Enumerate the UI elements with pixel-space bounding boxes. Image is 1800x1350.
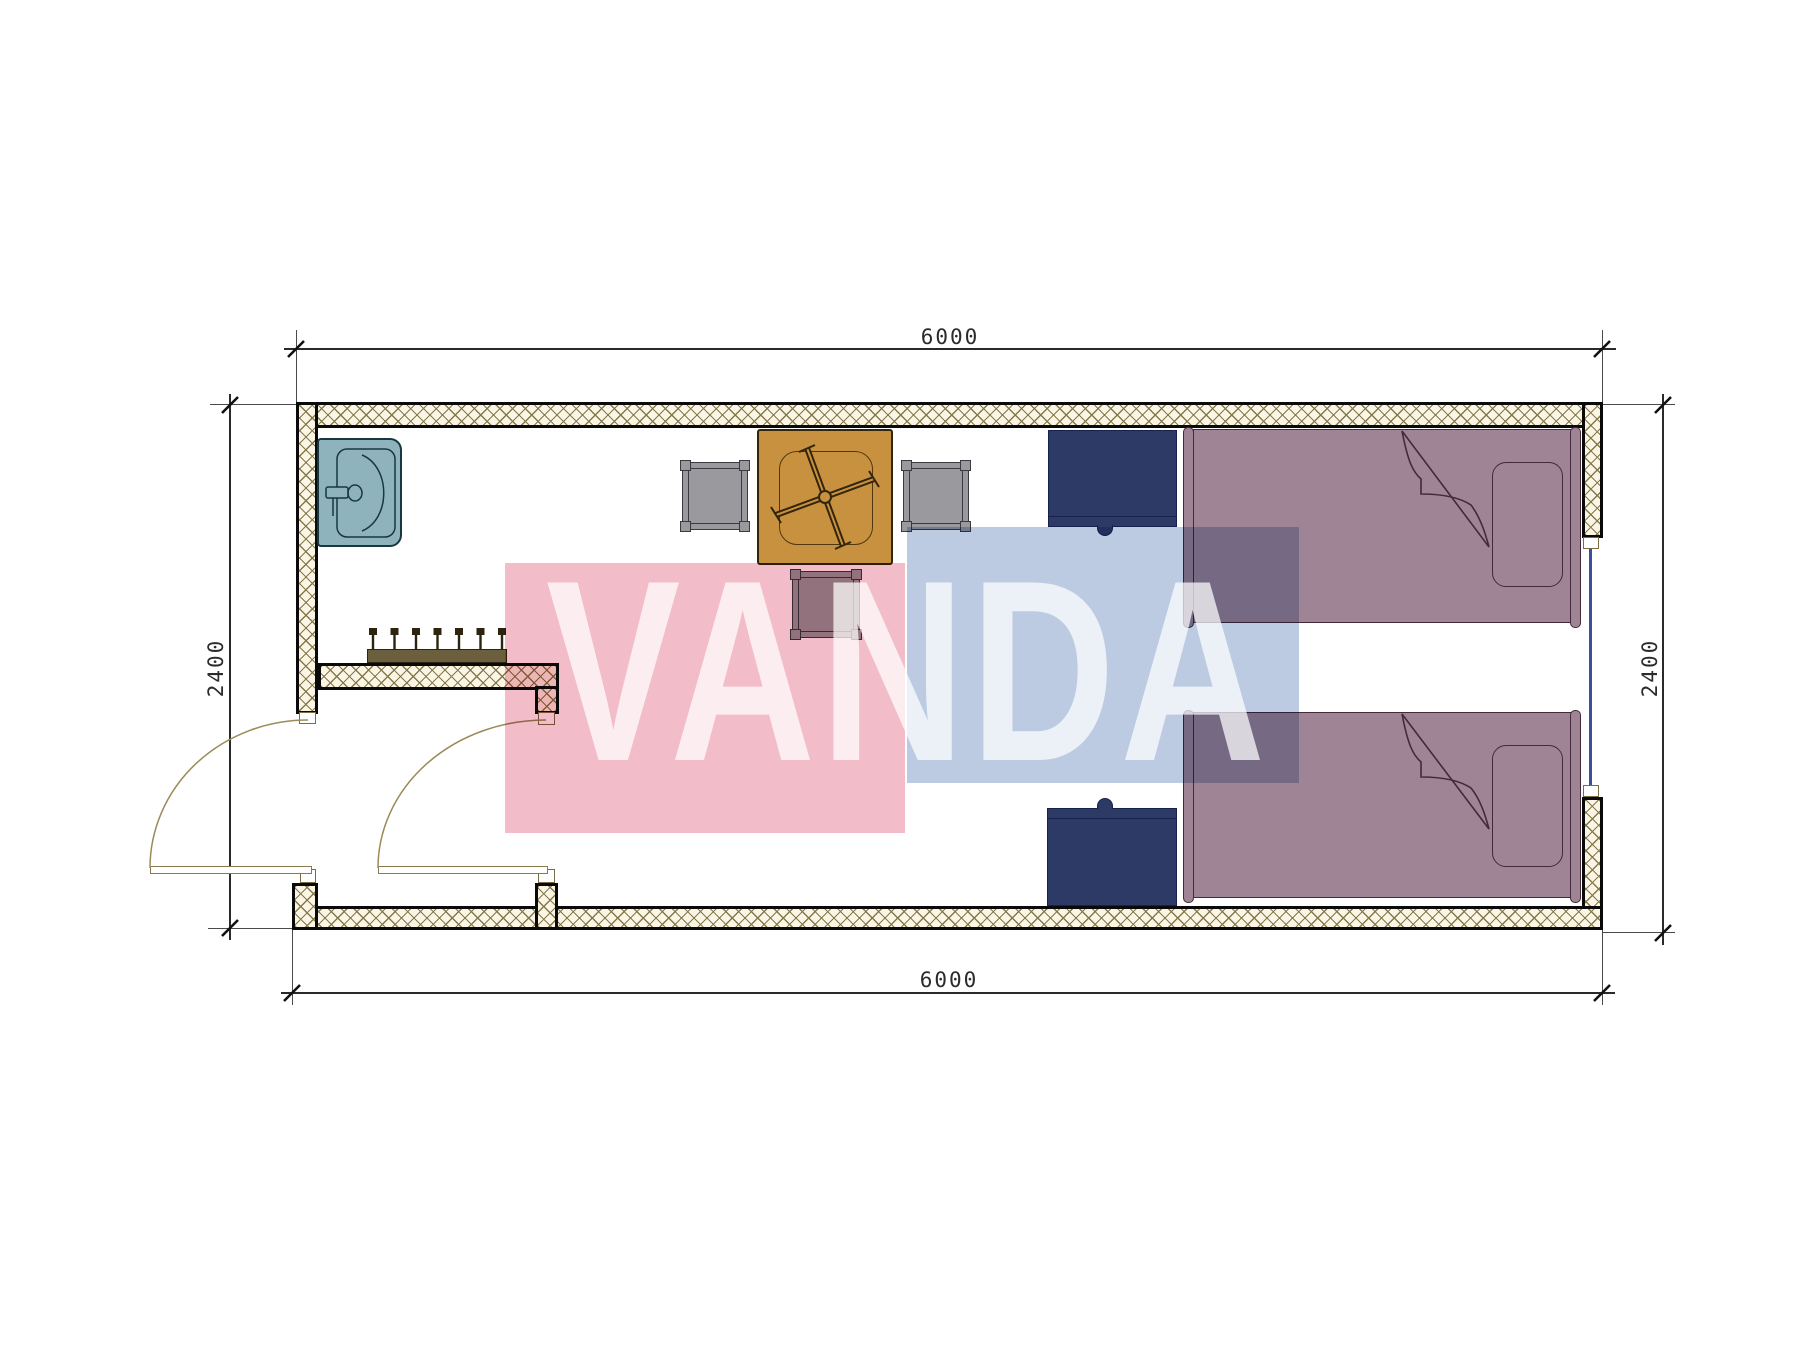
dimension-line-bottom (281, 992, 1615, 994)
dimension-label-top: 6000 (890, 325, 1010, 349)
chair-right (903, 462, 969, 530)
extension-line-bottom-right (1602, 930, 1603, 1005)
extension-line-right-top (1603, 404, 1675, 405)
dimension-line-left (229, 394, 231, 940)
watermark-text: VANDA (518, 548, 1298, 798)
door-swing-arcs (150, 720, 546, 868)
coat-rack (367, 649, 507, 663)
dimension-label-bottom: 6000 (889, 968, 1009, 992)
extension-line-left-top (210, 404, 296, 405)
window-jamb (1583, 785, 1599, 797)
extension-line-top-right (1602, 330, 1603, 404)
chair-frame (688, 468, 742, 524)
wall-left (296, 402, 318, 714)
wall-entry-door-stub (535, 883, 558, 930)
chair-post (680, 460, 691, 471)
wall-entry-corner-stub (292, 883, 318, 930)
bed-2-headboard (1570, 710, 1581, 903)
door-leaf-exterior (150, 866, 312, 874)
coat-hooks-icon (369, 628, 506, 649)
extension-line-right-bottom (1603, 932, 1675, 933)
wall-top (296, 402, 1603, 428)
extension-line-left-bottom (208, 928, 294, 929)
nightstand-bottom (1047, 808, 1177, 906)
door-jamb (299, 712, 316, 724)
wall-bottom (292, 906, 1603, 930)
door-leaf-interior (378, 866, 548, 874)
floor-plan-canvas: 6000 6000 2400 2400 (0, 0, 1800, 1350)
nightstand-top (1048, 430, 1177, 527)
dimension-line-right (1662, 394, 1664, 945)
bed-1-headboard (1570, 427, 1581, 628)
bed-2-pillow (1492, 745, 1563, 867)
chair-left (682, 462, 748, 530)
wall-right-upper (1582, 402, 1603, 538)
window-glass (1589, 549, 1592, 785)
extension-line-bottom-left (292, 930, 293, 1005)
dimension-label-right: 2400 (1638, 628, 1662, 708)
chair-frame (909, 468, 963, 524)
bed-1-pillow (1492, 462, 1563, 587)
chair-post (739, 460, 750, 471)
extension-line-top-left (296, 330, 297, 404)
window-jamb (1583, 537, 1599, 549)
dimension-label-left: 2400 (204, 628, 228, 708)
chair-post (960, 460, 971, 471)
drawer-line (1049, 516, 1176, 517)
sink (317, 438, 402, 547)
chair-post (901, 460, 912, 471)
drawer-line (1048, 818, 1176, 819)
